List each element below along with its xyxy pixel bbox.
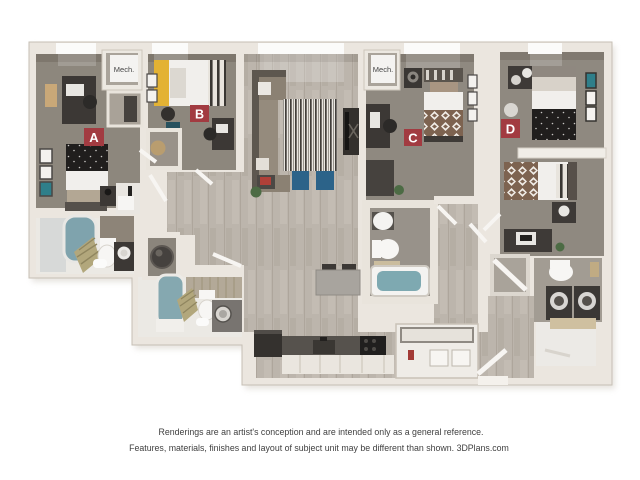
- svg-text:D: D: [506, 122, 515, 137]
- svg-text:Renderings are an artist's con: Renderings are an artist's conception an…: [159, 427, 484, 437]
- svg-text:Features, materials, finishes: Features, materials, finishes and layout…: [129, 443, 509, 453]
- svg-text:C: C: [408, 131, 418, 146]
- svg-text:Mech.: Mech.: [114, 65, 134, 74]
- svg-text:Mech.: Mech.: [373, 65, 393, 74]
- svg-text:B: B: [195, 108, 204, 122]
- svg-text:A: A: [89, 130, 99, 145]
